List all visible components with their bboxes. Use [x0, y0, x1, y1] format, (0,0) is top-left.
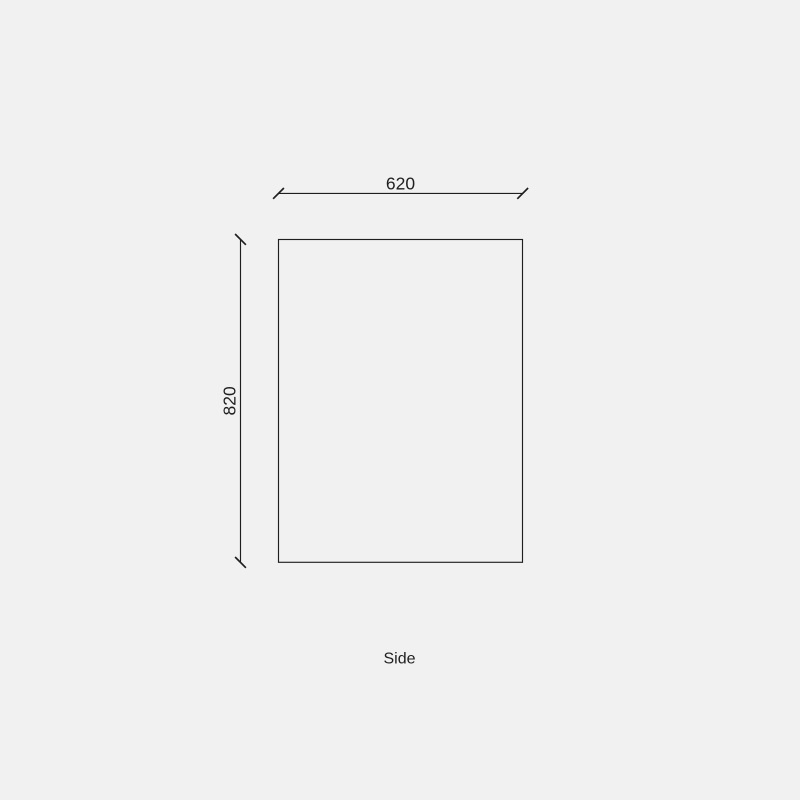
svg-text:820: 820 — [220, 386, 240, 415]
svg-text:620: 620 — [386, 174, 415, 194]
svg-text:Side: Side — [383, 651, 415, 668]
